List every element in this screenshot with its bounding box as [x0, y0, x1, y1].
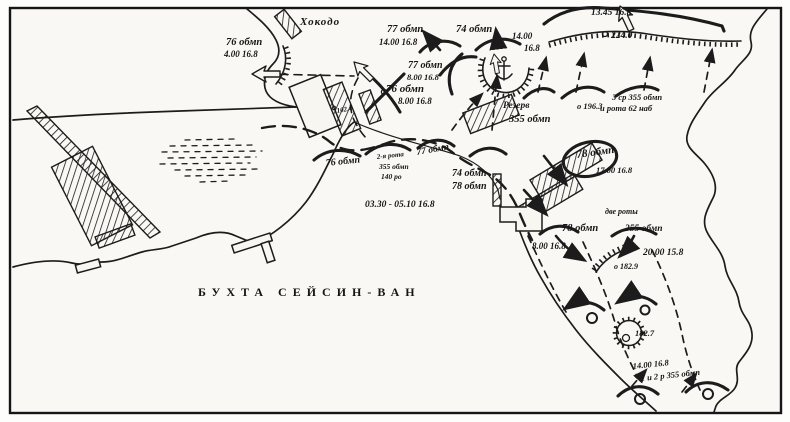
time-label-78obmp-east: 17.00 16.8 [596, 165, 633, 175]
time-label-355obmp-east: 20.00 15.8 [642, 248, 684, 258]
bay-name-label: БУХТА СЕЙСИН-ВАН [198, 285, 421, 299]
reserve-label-line2: 355 обмп [508, 114, 551, 125]
note-label-two-companies: две роты [605, 207, 638, 216]
group-label-3sr355-line1: 3 ср 355 обмп [611, 92, 662, 102]
map-canvas: Хокодо 76 обмп 4.00 16.8 77 обмп 14.00 1… [0, 0, 790, 422]
reserve-label-line1: Резерв [503, 101, 530, 111]
group-label-140-line3: 140 ро [381, 172, 402, 181]
time-label-landing: 03.30 - 05.10 16.8 [365, 200, 435, 210]
time-label-76obmp-north: 4.00 16.8 [223, 49, 258, 59]
time-label-77obmp-center: 8.00 16.8 [407, 72, 440, 82]
time-label-74obmp-north: 14.00 [512, 31, 533, 41]
place-label-hokodo: Хокодо [299, 16, 340, 28]
time-label-78obmp-south: 8.00 16.8 [532, 241, 566, 251]
unit-label-77obmp-north: 77 обмп [387, 24, 423, 35]
time-label-76obmp-center: 8.00 16.8 [398, 96, 432, 106]
unit-label-76obmp-north: 76 обмп [226, 37, 262, 48]
time-label-1345: 13.45 16.8 [591, 8, 632, 18]
unit-label-78obmp-line: 78 обмп [452, 181, 487, 192]
group-label-3sr355-line2: и рота 62 наб [600, 103, 653, 113]
time2-label-74obmp-north: 16.8 [524, 43, 540, 53]
unit-label-76obmp-center: 76 обмп [386, 83, 424, 95]
time-label-77obmp-north: 14.00 16.8 [379, 37, 418, 47]
group-label-140-line2: 355 обмп [378, 162, 409, 171]
unit-label-355obmp-east: 355 обмп [624, 223, 663, 234]
unit-label-74obmp-north: 74 обмп [456, 24, 492, 35]
unit-label-77obmp-center: 77 обмп [408, 60, 443, 71]
height-label-224: 224.0 [610, 31, 633, 41]
unit-label-74obmp-line: 74 обмп [452, 168, 487, 179]
unit-label-78obmp-south: 78 обмп [562, 223, 598, 234]
height-label-1829: о 182.9 [614, 262, 638, 271]
map-page: Хокодо 76 обмп 4.00 16.8 77 обмп 14.00 1… [0, 0, 790, 422]
height-label-1827: 182.7 [635, 328, 655, 338]
